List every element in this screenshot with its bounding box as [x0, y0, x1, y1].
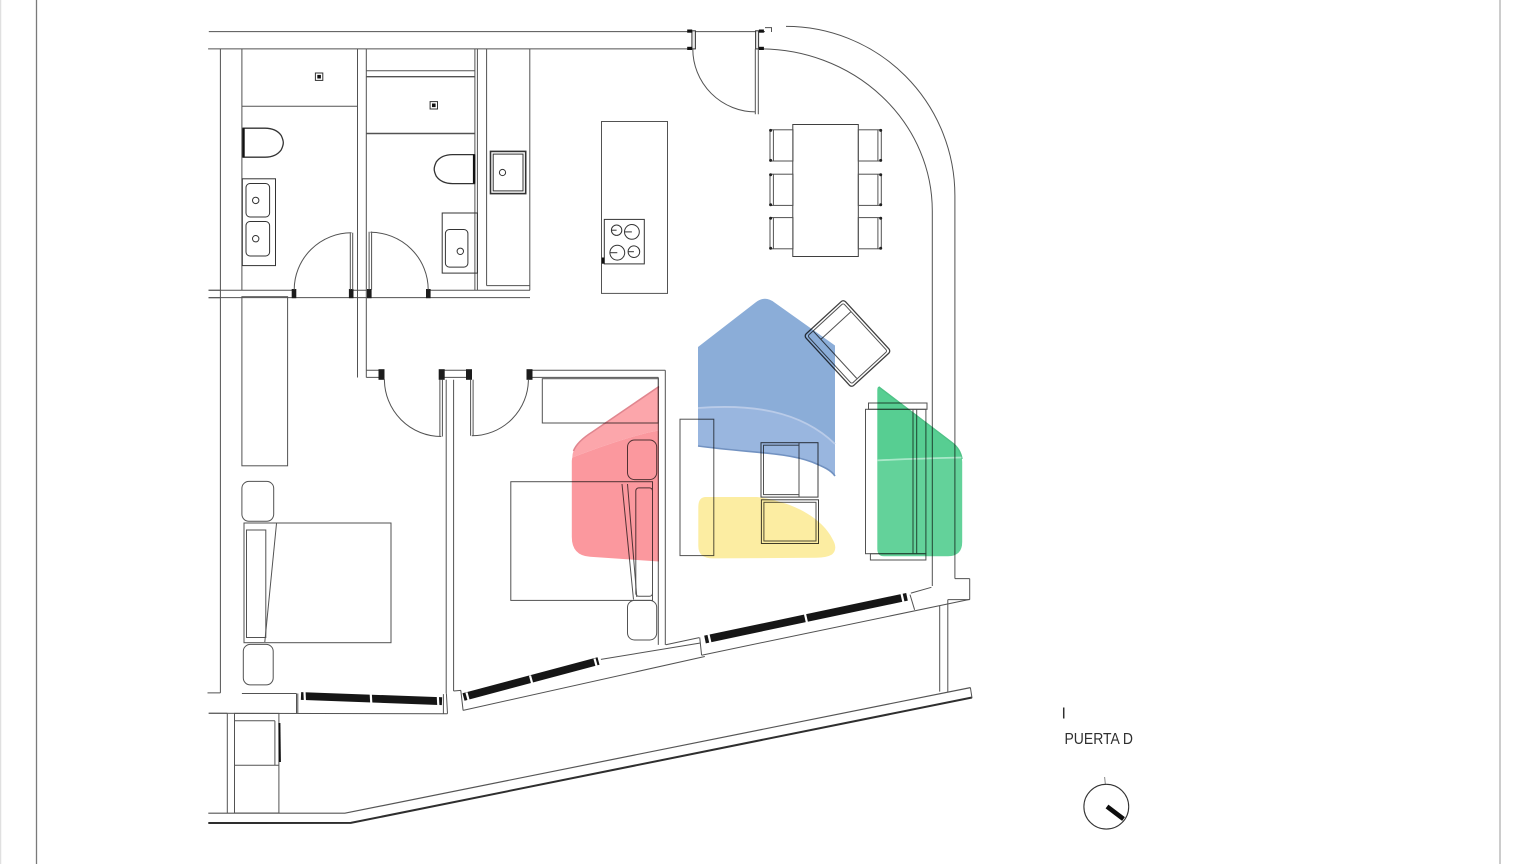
svg-text:PUERTA D: PUERTA D [1065, 731, 1134, 748]
svg-text:I: I [1062, 706, 1066, 723]
